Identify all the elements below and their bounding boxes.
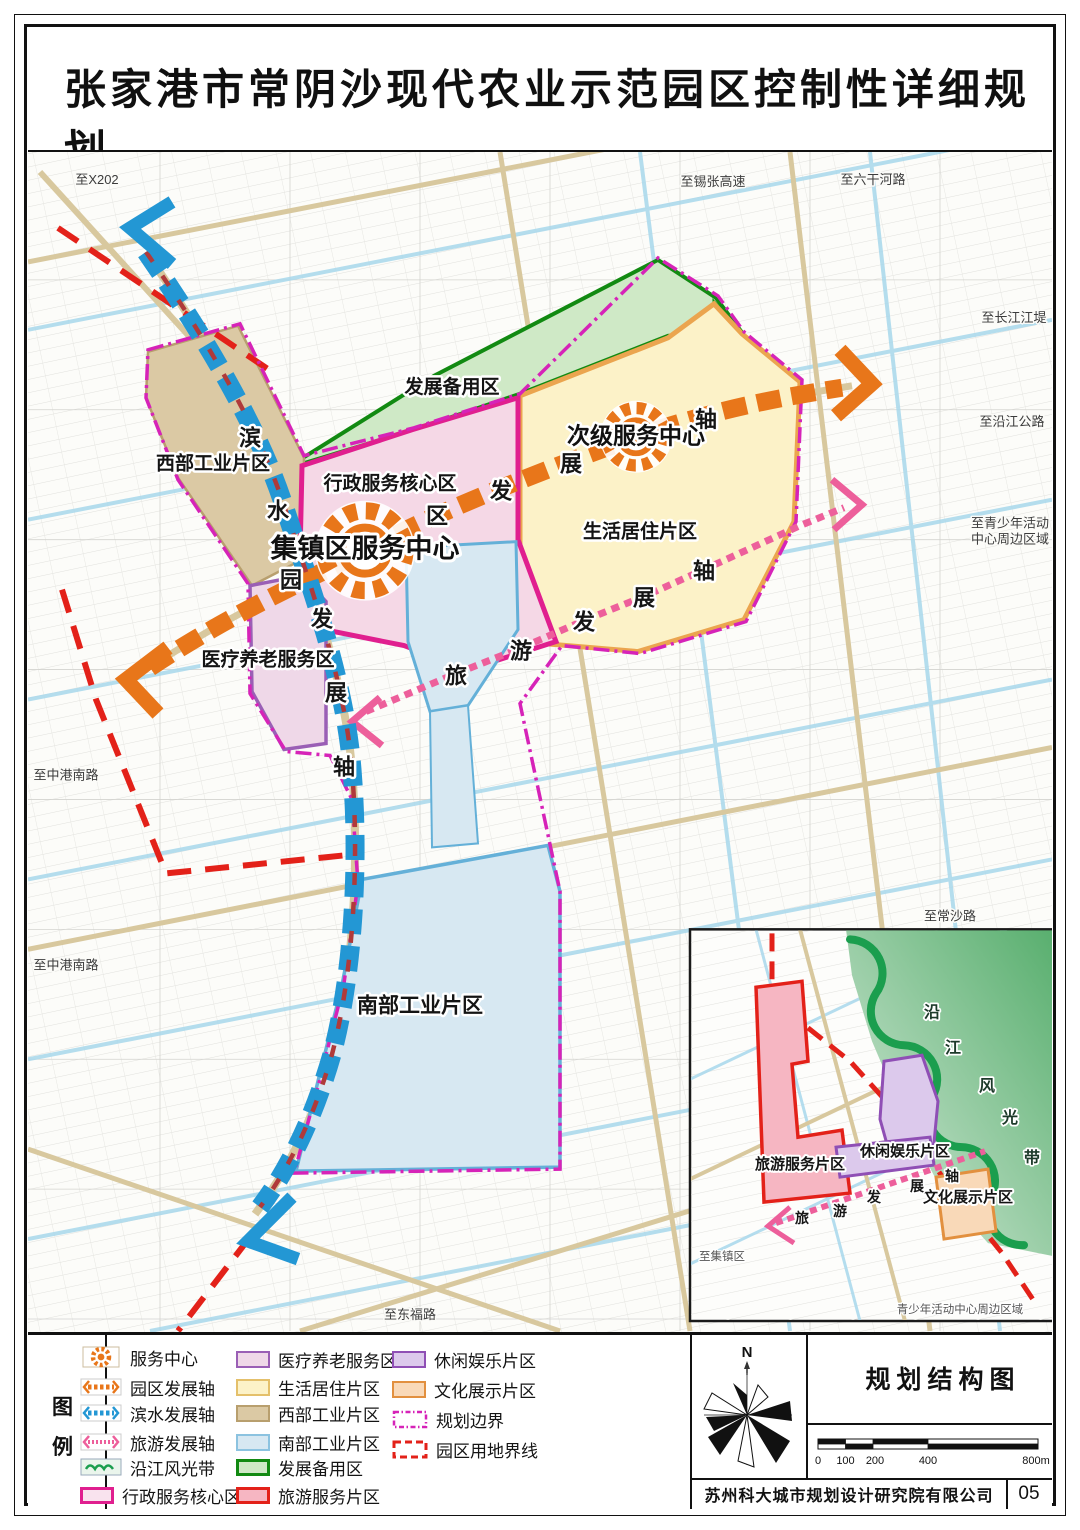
svg-text:水: 水	[267, 499, 290, 524]
scale-bar: 0 100 200 400 800m	[808, 1433, 1052, 1473]
park-axis-icon	[80, 1378, 122, 1396]
svg-text:滨: 滨	[239, 426, 261, 451]
legend-item-leisure: 休闲娱乐片区	[392, 1347, 536, 1371]
svg-text:沿: 沿	[924, 1003, 940, 1021]
legend-item-land-boundary: 园区用地界线	[392, 1437, 538, 1461]
svg-text:带: 带	[1024, 1148, 1040, 1167]
svg-text:江: 江	[945, 1039, 961, 1057]
land-boundary-swatch	[392, 1440, 428, 1459]
scale-tick-200: 200	[866, 1455, 884, 1467]
admin-core-swatch	[80, 1487, 114, 1504]
label-south-industrial: 南部工业片区	[357, 993, 483, 1017]
culture-swatch	[392, 1381, 426, 1398]
medical-swatch	[236, 1351, 270, 1368]
svg-text:轴: 轴	[693, 559, 715, 584]
svg-text:轴: 轴	[333, 754, 355, 779]
legend-item-service-center: 服务中心	[80, 1345, 198, 1369]
west-industrial-swatch	[236, 1405, 270, 1422]
svg-text:园: 园	[280, 568, 302, 593]
edge-label-dongfu: 至东福路	[384, 1307, 436, 1322]
scale-tick-800: 800m	[1022, 1455, 1050, 1467]
label-admin-core: 行政服务核心区	[323, 472, 457, 495]
legend-item-west-industrial: 西部工业片区	[236, 1401, 380, 1425]
legend-strip: 图 例 服务中心 园区发展轴	[28, 1332, 1052, 1509]
edge-label-youth-1: 至青少年活动	[971, 516, 1049, 531]
inset-label-youth-area: 青少年活动中心周边区域	[897, 1302, 1024, 1316]
main-map-svg: 西部工业片区 行政服务核心区 发展备用区 生活居住片区 医疗养老服务区 南部工业…	[28, 152, 1052, 1332]
inset-label-leisure: 休闲娱乐片区	[859, 1142, 950, 1160]
inset-label-tourism-service: 旅游服务片区	[755, 1155, 845, 1173]
svg-text:光: 光	[1001, 1108, 1018, 1127]
edge-label-zhonggang-1: 至中港南路	[34, 767, 99, 782]
waterfront-axis-icon	[80, 1404, 122, 1422]
svg-text:展: 展	[633, 586, 655, 611]
riverside-belt-icon	[80, 1458, 122, 1476]
svg-text:旅: 旅	[795, 1210, 809, 1226]
legend-caption-char-1: 图	[52, 1391, 73, 1421]
sheet-header: 张家港市常阴沙现代农业示范园区控制性详细规划 THE REGULATORY PL…	[28, 28, 1052, 154]
legend-item-riverside-belt: 沿江风光带	[80, 1455, 215, 1479]
svg-text:轴: 轴	[695, 407, 717, 432]
compass-rose-icon: N	[692, 1337, 804, 1477]
svg-text:游: 游	[510, 639, 532, 664]
edge-label-zhonggang-2: 至中港南路	[34, 957, 99, 972]
scale-tick-400: 400	[919, 1455, 937, 1467]
south-industrial-swatch	[236, 1434, 270, 1451]
svg-text:发: 发	[489, 479, 512, 504]
svg-text:风: 风	[979, 1077, 995, 1095]
legend-item-medical: 医疗养老服务区	[236, 1347, 397, 1371]
main-map: 西部工业片区 行政服务核心区 发展备用区 生活居住片区 医疗养老服务区 南部工业…	[28, 152, 1052, 1332]
label-west-industrial: 西部工业片区	[156, 452, 270, 475]
svg-text:展: 展	[560, 452, 582, 477]
legend-item-waterfront-axis: 滨水发展轴	[80, 1401, 215, 1425]
edge-label-xizhang: 至锡张高速	[681, 174, 746, 189]
company-name: 苏州科大城市规划设计研究院有限公司	[692, 1478, 1006, 1509]
svg-text:轴: 轴	[945, 1168, 959, 1184]
title-block: N 规划结构图	[690, 1335, 1052, 1509]
tourism-service-swatch	[236, 1487, 270, 1504]
label-medical: 医疗养老服务区	[202, 648, 335, 671]
service-center-sun-icon	[80, 1344, 122, 1370]
edge-label-liugan: 至六干河路	[841, 172, 906, 187]
scale-tick-0: 0	[815, 1455, 821, 1467]
plan-sheet: 张家港市常阴沙现代农业示范园区控制性详细规划 THE REGULATORY PL…	[0, 0, 1080, 1530]
svg-text:展: 展	[910, 1178, 924, 1194]
legend-item-culture: 文化展示片区	[392, 1377, 536, 1401]
tourism-axis-icon	[80, 1433, 122, 1451]
edge-label-x202: 至X202	[75, 172, 118, 187]
page-number: 05	[1006, 1478, 1052, 1509]
leisure-swatch	[392, 1351, 426, 1368]
legend-item-park-axis: 园区发展轴	[80, 1375, 215, 1399]
legend-item-tourism-service: 旅游服务片区	[236, 1483, 380, 1507]
svg-text:发: 发	[572, 610, 595, 635]
label-reserve: 发展备用区	[404, 375, 500, 398]
inset-label-to-town: 至集镇区	[699, 1249, 745, 1263]
legend-item-south-industrial: 南部工业片区	[236, 1430, 380, 1454]
residential-swatch	[236, 1379, 270, 1396]
legend-item-admin-core: 行政服务核心区	[80, 1483, 241, 1507]
svg-text:旅: 旅	[445, 664, 467, 689]
svg-text:发: 发	[866, 1189, 881, 1205]
label-town-center: 集镇区服务中心	[270, 533, 460, 564]
label-secondary-center: 次级服务中心	[567, 423, 705, 449]
reserve-swatch	[236, 1459, 270, 1476]
edge-label-changjiang: 至长江江堤	[982, 310, 1047, 325]
drawing-title: 规划结构图	[836, 1347, 1050, 1409]
legend-item-reserve: 发展备用区	[236, 1455, 363, 1479]
svg-text:区: 区	[426, 504, 448, 529]
label-residential: 生活居住片区	[583, 520, 697, 543]
scale-tick-100: 100	[836, 1455, 854, 1467]
svg-text:发: 发	[310, 607, 333, 632]
svg-text:游: 游	[833, 1203, 847, 1219]
legend-item-tourism-axis: 旅游发展轴	[80, 1430, 215, 1454]
edge-label-yanjiang: 至沿江公路	[980, 414, 1045, 429]
edge-label-changsha: 至常沙路	[924, 908, 976, 923]
edge-label-youth-2: 中心周边区域	[971, 532, 1049, 547]
inset-label-culture: 文化展示片区	[923, 1188, 1013, 1206]
legend-item-residential: 生活居住片区	[236, 1375, 380, 1399]
legend-item-plan-boundary: 规划边界	[392, 1407, 504, 1431]
titleblock-divider-h1	[806, 1423, 1052, 1425]
svg-text:展: 展	[325, 681, 347, 706]
north-label: N	[742, 1344, 753, 1361]
plan-boundary-swatch	[392, 1410, 428, 1429]
legend-caption-char-2: 例	[52, 1431, 73, 1461]
inset-map: 旅游服务片区 休闲娱乐片区 文化展示片区 至集镇区 青少年活动中心周边区域 沿 …	[690, 904, 1052, 1321]
